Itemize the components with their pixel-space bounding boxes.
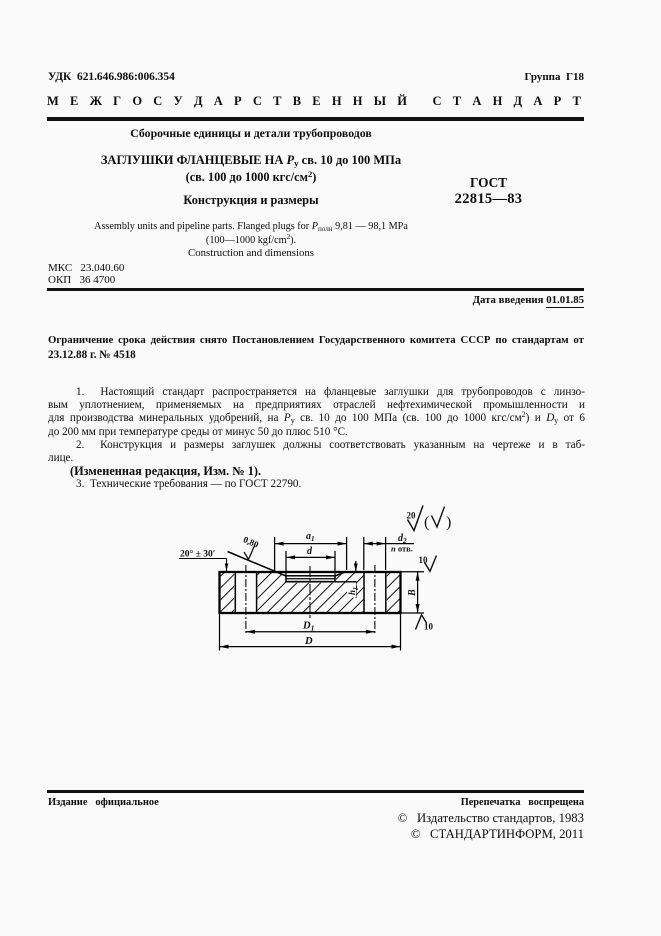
svg-text:20: 20	[407, 511, 417, 521]
svg-text:10: 10	[419, 555, 429, 565]
svg-text:п отв.: п отв.	[391, 544, 413, 554]
svg-text:10: 10	[424, 622, 434, 632]
svg-text:В: В	[407, 589, 418, 597]
svg-text:0,80: 0,80	[242, 534, 261, 550]
svg-text:): )	[446, 514, 451, 531]
svg-text:(: (	[424, 514, 429, 531]
svg-text:20° ± 30′: 20° ± 30′	[180, 549, 216, 560]
svg-text:D1: D1	[302, 621, 314, 633]
svg-text:а1: а1	[306, 531, 315, 543]
svg-text:d: d	[307, 546, 313, 557]
svg-text:D: D	[304, 636, 313, 647]
